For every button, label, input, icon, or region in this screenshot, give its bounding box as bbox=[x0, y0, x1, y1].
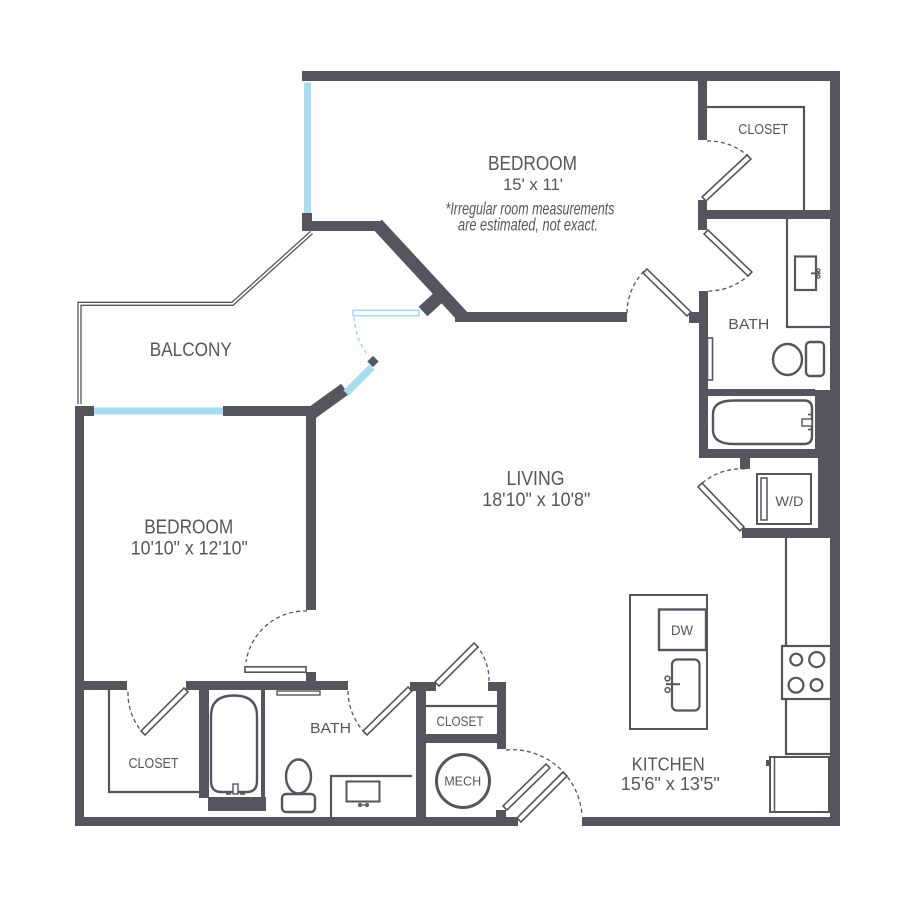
svg-text:BATH: BATH bbox=[310, 720, 351, 737]
svg-text:MECH: MECH bbox=[444, 774, 481, 789]
svg-text:DW: DW bbox=[671, 622, 694, 638]
svg-text:are estimated, not exact.: are estimated, not exact. bbox=[458, 215, 598, 235]
svg-text:BATH: BATH bbox=[728, 316, 769, 333]
svg-text:CLOSET: CLOSET bbox=[437, 713, 484, 729]
svg-text:CLOSET: CLOSET bbox=[738, 122, 788, 138]
svg-text:BEDROOM: BEDROOM bbox=[488, 152, 577, 175]
svg-text:18'10" x 10'8": 18'10" x 10'8" bbox=[482, 490, 590, 511]
svg-text:BALCONY: BALCONY bbox=[150, 340, 232, 361]
svg-text:LIVING: LIVING bbox=[507, 468, 565, 490]
svg-text:CLOSET: CLOSET bbox=[129, 756, 179, 772]
svg-text:BEDROOM: BEDROOM bbox=[144, 516, 233, 538]
svg-text:KITCHEN: KITCHEN bbox=[632, 754, 705, 775]
svg-text:W/D: W/D bbox=[775, 494, 803, 509]
svg-text:15'6" x 13'5": 15'6" x 13'5" bbox=[621, 773, 720, 794]
svg-text:10'10" x 12'10": 10'10" x 12'10" bbox=[131, 539, 248, 560]
svg-text:15' x 11': 15' x 11' bbox=[503, 175, 563, 194]
